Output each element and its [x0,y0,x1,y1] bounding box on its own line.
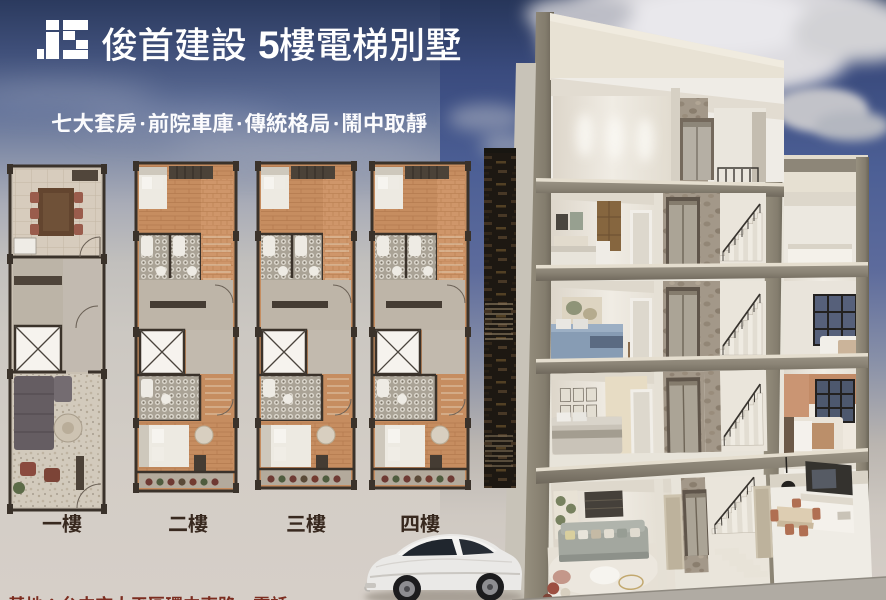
svg-text:5: 5 [258,24,280,67]
